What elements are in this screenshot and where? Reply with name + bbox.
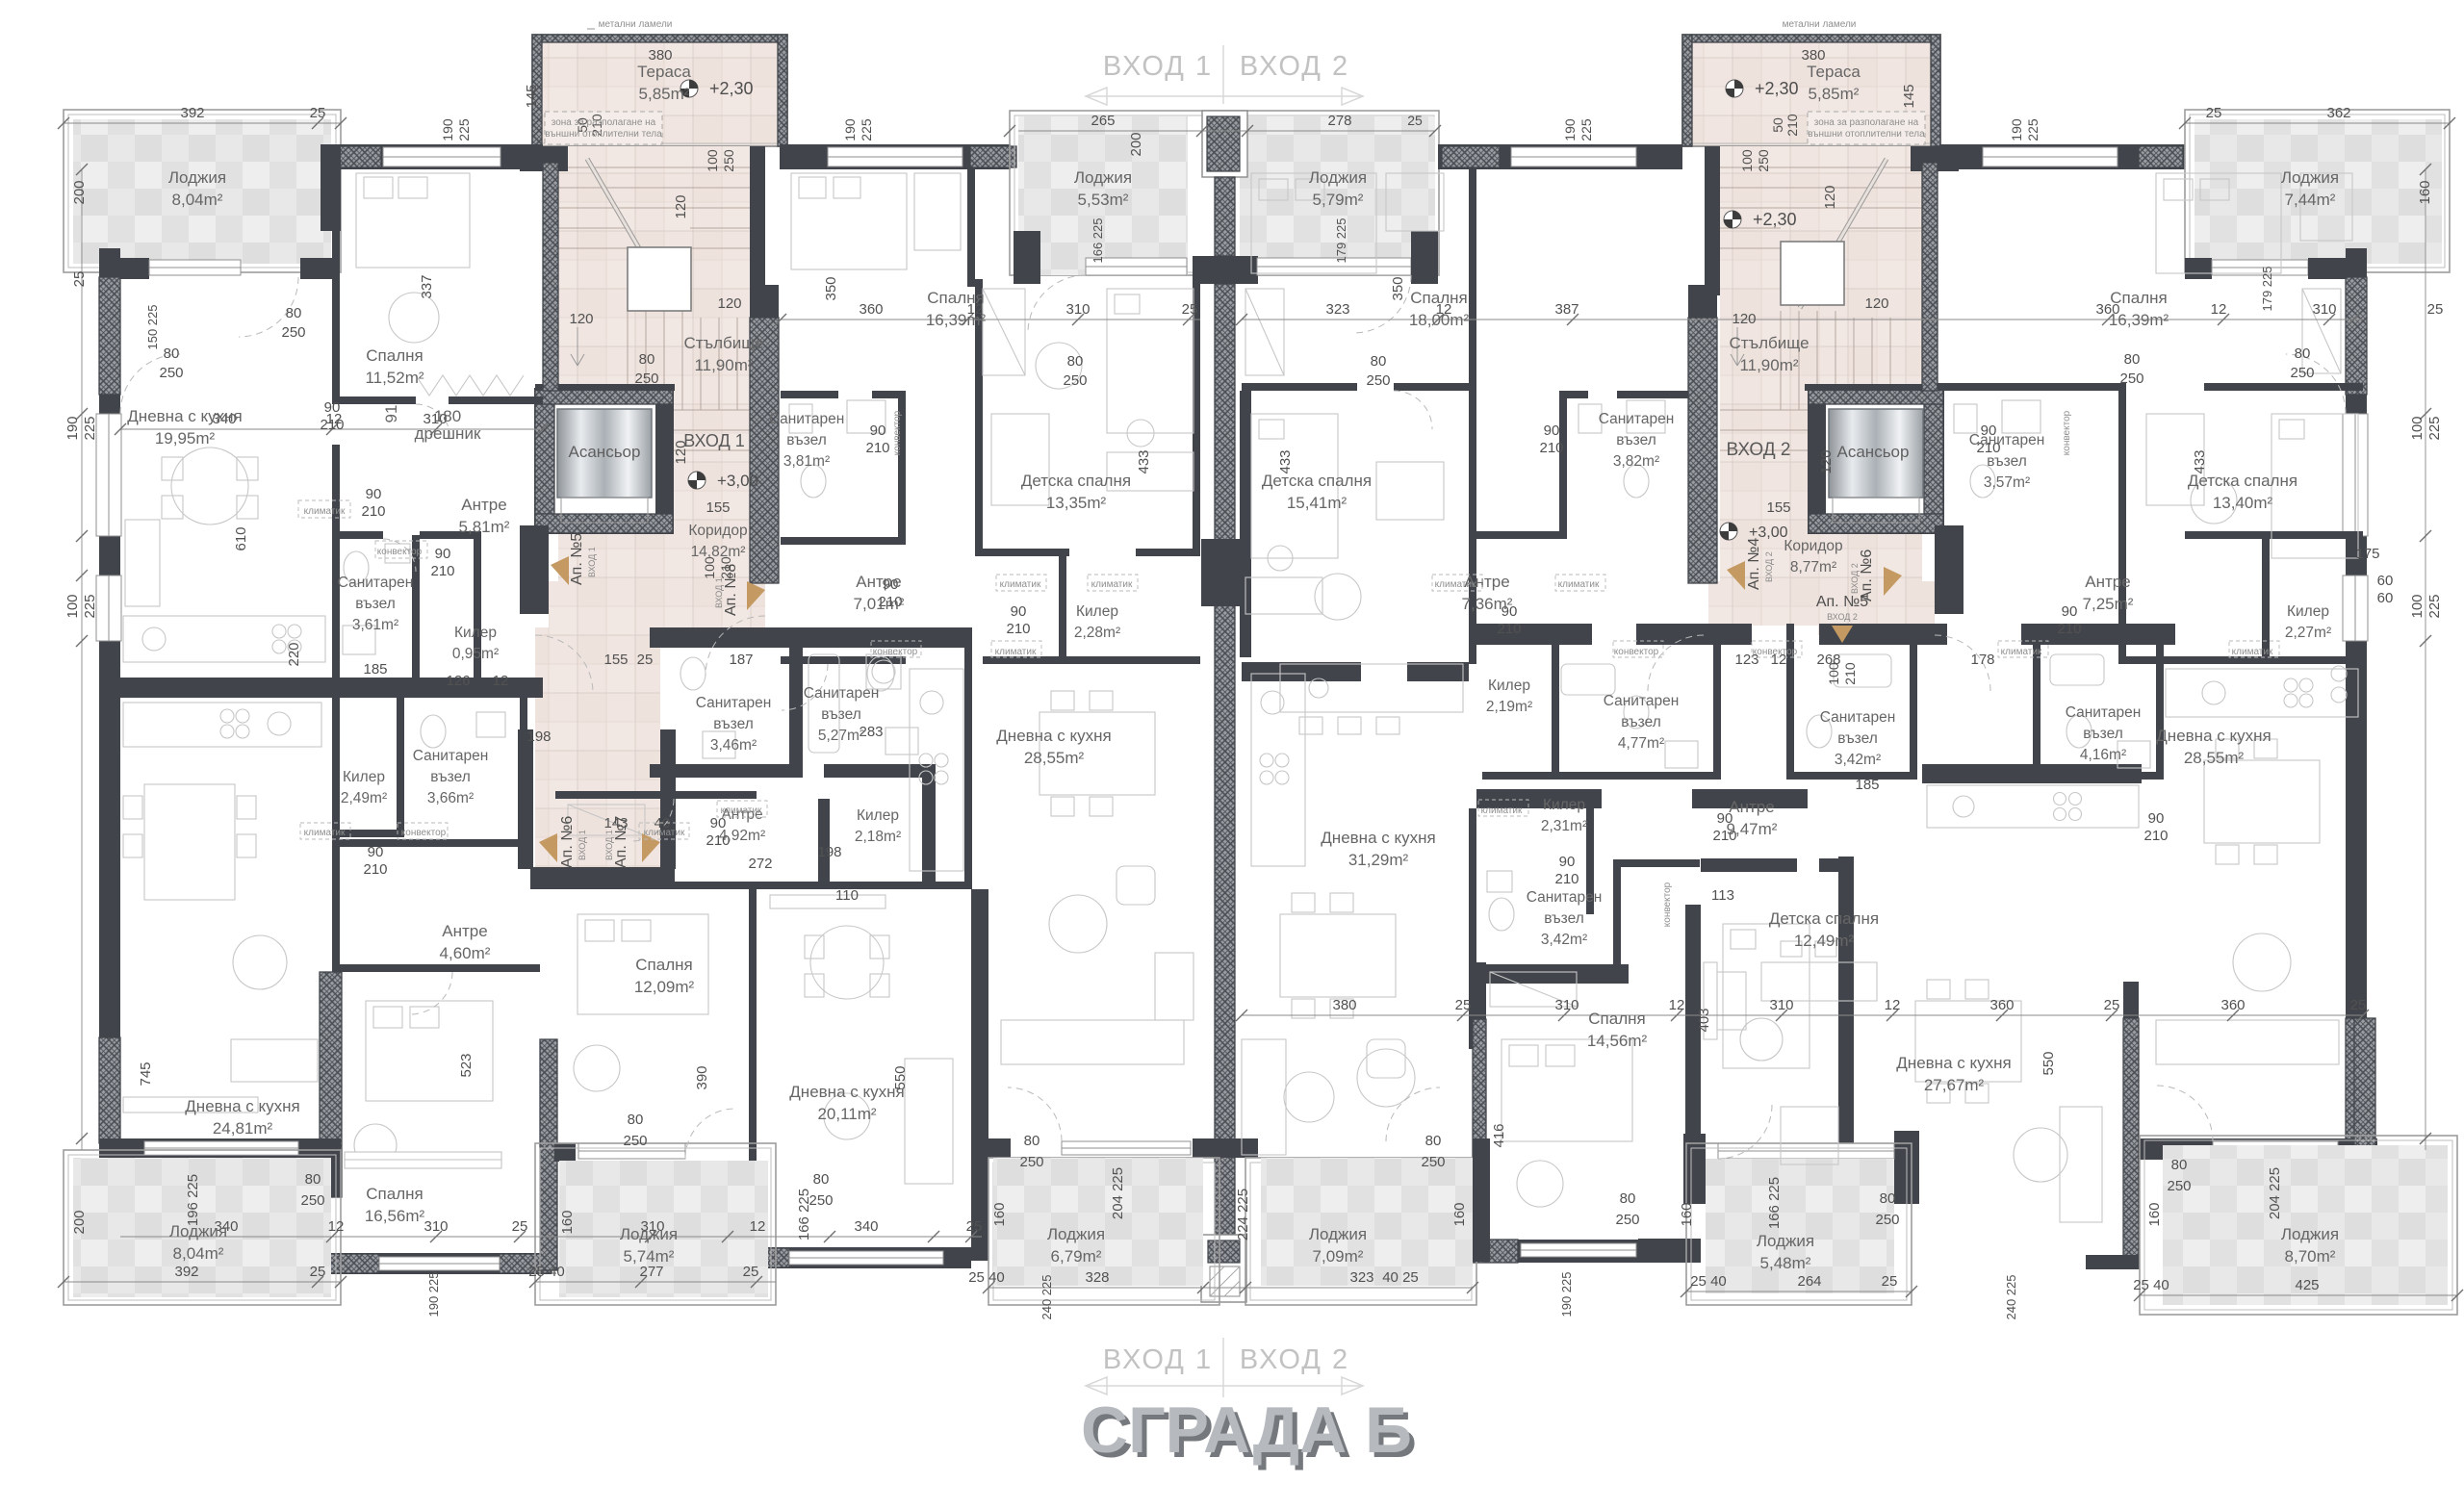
svg-text:Детска спалня: Детска спалня [1769, 909, 1879, 928]
svg-text:145: 145 [1901, 84, 1917, 108]
svg-text:155: 155 [603, 652, 628, 668]
svg-text:конвектор: конвектор [1614, 647, 1659, 657]
svg-text:+2,30: +2,30 [1753, 210, 1797, 229]
svg-text:416: 416 [1491, 1123, 1507, 1147]
svg-text:225: 225 [2025, 118, 2040, 141]
svg-text:5,74m²: 5,74m² [624, 1247, 675, 1266]
svg-text:25 40: 25 40 [968, 1269, 1005, 1286]
svg-text:климатик: климатик [721, 806, 762, 816]
svg-text:Килер: Килер [1543, 797, 1585, 813]
svg-text:12,49m²: 12,49m² [1794, 932, 1855, 950]
svg-text:80: 80 [1024, 1133, 1040, 1149]
svg-text:конвектор: конвектор [401, 828, 447, 838]
svg-text:25: 25 [637, 652, 654, 668]
svg-text:90: 90 [2062, 603, 2078, 620]
svg-text:Лоджия: Лоджия [1074, 168, 1132, 187]
svg-text:190: 190 [842, 118, 858, 141]
svg-text:80: 80 [1425, 1133, 1442, 1149]
svg-text:Санитарен: Санитарен [1604, 693, 1680, 709]
svg-text:Детска спалня: Детска спалня [2188, 472, 2297, 490]
svg-text:392: 392 [180, 105, 204, 121]
svg-text:179 225: 179 225 [2260, 267, 2274, 312]
svg-text:възел: възел [1987, 453, 2027, 470]
svg-text:250: 250 [1366, 372, 1390, 389]
svg-text:50: 50 [1770, 117, 1785, 133]
svg-text:392: 392 [174, 1264, 198, 1280]
svg-text:Стълбище: Стълбище [1729, 334, 1809, 352]
svg-text:Дневна с кухня: Дневна с кухня [185, 1097, 299, 1115]
svg-text:250: 250 [2167, 1178, 2191, 1194]
svg-text:2,31m²: 2,31m² [1541, 818, 1587, 834]
svg-text:80: 80 [305, 1171, 321, 1188]
svg-text:250: 250 [721, 149, 736, 172]
svg-text:Санитарен: Санитарен [1969, 432, 2045, 448]
svg-text:360: 360 [859, 301, 883, 318]
svg-text:12: 12 [328, 1218, 345, 1235]
svg-text:ВХОД 2: ВХОД 2 [1827, 612, 1858, 622]
svg-text:25: 25 [966, 1218, 983, 1235]
svg-text:120: 120 [717, 295, 741, 312]
svg-text:240 225: 240 225 [2004, 1275, 2018, 1320]
svg-text:210: 210 [1006, 621, 1030, 637]
svg-text:200: 200 [71, 1210, 88, 1234]
svg-text:15,41m²: 15,41m² [1287, 494, 1347, 512]
svg-text:27,67m²: 27,67m² [1924, 1076, 1985, 1094]
svg-text:433: 433 [2192, 449, 2208, 473]
svg-text:2,18m²: 2,18m² [855, 829, 901, 845]
svg-text:250: 250 [1421, 1154, 1445, 1170]
svg-text:2,49m²: 2,49m² [341, 790, 387, 806]
svg-text:120: 120 [1822, 185, 1838, 209]
svg-text:конвектор: конвектор [1753, 647, 1798, 657]
svg-text:190 225: 190 225 [1559, 1272, 1574, 1317]
svg-text:Килер: Килер [1076, 603, 1118, 620]
svg-text:Дневна с кухня: Дневна с кухня [996, 727, 1111, 745]
svg-text:523: 523 [458, 1053, 475, 1077]
svg-text:90: 90 [435, 546, 451, 562]
svg-text:Спалня: Спалня [366, 346, 423, 365]
svg-text:климатик: климатик [1435, 579, 1476, 590]
svg-text:25: 25 [2104, 997, 2120, 1013]
svg-text:конвектор: конвектор [2062, 410, 2072, 455]
svg-text:180: 180 [434, 407, 461, 425]
svg-text:380: 380 [1332, 997, 1356, 1013]
svg-text:0,95m²: 0,95m² [452, 646, 499, 662]
svg-text:Лоджия: Лоджия [1757, 1232, 1814, 1250]
svg-text:190 225: 190 225 [426, 1272, 441, 1317]
svg-text:225: 225 [82, 594, 98, 618]
svg-text:2,28m²: 2,28m² [1074, 625, 1120, 641]
svg-text:100: 100 [705, 149, 720, 172]
svg-text:198: 198 [817, 844, 841, 860]
svg-text:190: 190 [64, 416, 81, 440]
svg-text:60: 60 [2377, 590, 2394, 606]
svg-text:Санитарен: Санитарен [1527, 889, 1603, 906]
svg-text:80: 80 [286, 305, 302, 321]
svg-text:25: 25 [1882, 1273, 1898, 1290]
svg-text:380: 380 [648, 47, 672, 64]
svg-text:80: 80 [1620, 1190, 1636, 1207]
svg-text:11,52m²: 11,52m² [365, 369, 423, 387]
svg-text:337: 337 [419, 274, 435, 298]
svg-text:160: 160 [559, 1210, 576, 1234]
svg-text:250: 250 [808, 1192, 833, 1209]
svg-text:28,55m²: 28,55m² [1024, 749, 1085, 767]
svg-text:80: 80 [813, 1171, 830, 1188]
svg-text:80: 80 [639, 351, 655, 368]
svg-text:3,61m²: 3,61m² [352, 617, 398, 633]
svg-text:745: 745 [138, 1061, 154, 1086]
svg-text:3,57m²: 3,57m² [1984, 474, 2030, 491]
svg-text:ВХОД 2: ВХОД 2 [1764, 551, 1774, 582]
svg-text:80: 80 [164, 345, 180, 362]
svg-text:250: 250 [623, 1133, 647, 1149]
svg-text:конвектор: конвектор [873, 647, 918, 657]
svg-text:328: 328 [1085, 1269, 1109, 1286]
svg-text:Тераса: Тераса [1807, 63, 1861, 81]
svg-text:433: 433 [1136, 449, 1152, 473]
svg-text:5,81m²: 5,81m² [459, 518, 510, 536]
svg-text:18,00m²: 18,00m² [1409, 311, 1470, 329]
svg-text:196 225: 196 225 [185, 1174, 201, 1226]
svg-text:Санитарен: Санитарен [2066, 704, 2142, 721]
svg-text:ВХОД 2: ВХОД 2 [1240, 1344, 1349, 1375]
svg-text:145: 145 [524, 84, 540, 108]
svg-text:225: 225 [456, 118, 472, 141]
svg-text:климатик: климатик [1481, 806, 1523, 816]
svg-text:160: 160 [1679, 1202, 1695, 1226]
svg-text:Антре: Антре [461, 496, 506, 514]
svg-text:12,09m²: 12,09m² [634, 978, 695, 996]
svg-text:Ап. №5: Ап. №5 [569, 533, 585, 585]
svg-text:210: 210 [363, 861, 387, 878]
svg-text:Асансьор: Асансьор [569, 443, 641, 461]
svg-text:11,90m²: 11,90m² [694, 356, 753, 374]
svg-text:210: 210 [2143, 828, 2168, 844]
svg-text:25: 25 [1455, 997, 1472, 1013]
svg-text:8,77m²: 8,77m² [1790, 559, 1836, 575]
svg-text:250: 250 [1756, 149, 1771, 172]
svg-text:Дневна с кухня: Дневна с кухня [1321, 829, 1435, 847]
svg-text:91: 91 [382, 405, 400, 423]
svg-text:20,11m²: 20,11m² [817, 1105, 876, 1123]
svg-text:Санитарен: Санитарен [338, 575, 414, 591]
svg-text:100: 100 [2409, 416, 2425, 440]
svg-text:5,79m²: 5,79m² [1313, 191, 1364, 209]
svg-text:5,85m²: 5,85m² [639, 85, 690, 103]
svg-text:425: 425 [2295, 1277, 2319, 1293]
svg-text:160: 160 [2417, 180, 2433, 204]
svg-text:+3,00: +3,00 [717, 472, 758, 490]
svg-text:90: 90 [1544, 422, 1560, 439]
svg-text:80: 80 [628, 1112, 644, 1128]
svg-text:Стълбище: Стълбище [683, 334, 763, 352]
svg-text:25: 25 [512, 1218, 528, 1235]
svg-text:дрешник: дрешник [415, 424, 481, 443]
svg-text:възел: възел [1616, 432, 1656, 448]
svg-text:210: 210 [320, 417, 344, 433]
svg-text:6,79m²: 6,79m² [1051, 1247, 1102, 1266]
svg-text:100: 100 [2409, 594, 2425, 618]
svg-text:550: 550 [2040, 1051, 2057, 1075]
svg-text:190: 190 [2009, 118, 2024, 141]
svg-text:4,60m²: 4,60m² [440, 944, 491, 962]
svg-text:4,92m²: 4,92m² [719, 828, 765, 844]
svg-text:387: 387 [1554, 301, 1578, 318]
svg-text:277: 277 [639, 1264, 663, 1280]
svg-text:климатик: климатик [1558, 579, 1600, 590]
svg-text:120: 120 [673, 194, 689, 218]
svg-text:Тераса: Тераса [637, 63, 691, 81]
svg-text:190: 190 [1562, 118, 1578, 141]
svg-text:климатик: климатик [644, 828, 685, 838]
svg-text:90: 90 [2148, 810, 2165, 827]
svg-text:323: 323 [1349, 1269, 1373, 1286]
svg-text:ВХОД 1: ВХОД 1 [587, 547, 597, 577]
svg-text:350: 350 [823, 276, 839, 300]
svg-text:Лоджия: Лоджия [1309, 168, 1367, 187]
svg-text:ВХОД 2: ВХОД 2 [1727, 440, 1791, 460]
svg-text:възел: възел [821, 706, 861, 723]
svg-text:Спалня: Спалня [1588, 1010, 1645, 1028]
svg-text:3,66m²: 3,66m² [427, 790, 474, 806]
svg-text:климатик: климатик [995, 647, 1037, 657]
svg-text:240 225: 240 225 [1039, 1275, 1054, 1320]
svg-text:зона за разполагане на: зона за разполагане на [552, 117, 656, 128]
svg-text:Спалня: Спалня [1410, 289, 1467, 307]
svg-text:възел: възел [355, 596, 396, 612]
svg-text:13,40m²: 13,40m² [2213, 494, 2273, 512]
svg-text:7,44m²: 7,44m² [2285, 191, 2336, 209]
svg-text:250: 250 [159, 365, 183, 381]
svg-text:360: 360 [1989, 997, 2014, 1013]
svg-text:Спалня: Спалня [366, 1185, 423, 1203]
svg-text:14,82m²: 14,82m² [691, 544, 746, 560]
svg-text:225: 225 [82, 416, 98, 440]
svg-text:Ап. №8: Ап. №8 [723, 564, 739, 616]
svg-text:250: 250 [300, 1192, 324, 1209]
svg-text:Лоджия: Лоджия [2281, 168, 2339, 187]
svg-text:11,90m²: 11,90m² [1739, 356, 1798, 374]
svg-text:конвектор: конвектор [892, 410, 903, 455]
svg-text:110: 110 [835, 887, 859, 904]
svg-text:ВХОД 1: ВХОД 1 [1103, 51, 1213, 82]
svg-text:Килер: Килер [2287, 603, 2329, 620]
svg-text:8,04m²: 8,04m² [173, 1244, 224, 1263]
svg-text:ВХОД 1: ВХОД 1 [577, 830, 587, 860]
svg-text:7,25m²: 7,25m² [2083, 595, 2134, 613]
svg-text:конвектор: конвектор [1662, 882, 1673, 927]
svg-text:Спалня: Спалня [2110, 289, 2167, 307]
svg-text:210: 210 [2057, 621, 2081, 637]
svg-text:ВХОД 2: ВХОД 2 [1240, 51, 1349, 82]
svg-text:16,39m²: 16,39m² [926, 311, 987, 329]
svg-text:362: 362 [2326, 105, 2350, 121]
svg-text:+2,30: +2,30 [1755, 79, 1799, 98]
svg-text:225: 225 [1578, 118, 1594, 141]
svg-text:Спалня: Спалня [635, 956, 692, 974]
svg-text:25: 25 [2427, 301, 2444, 318]
svg-text:80: 80 [2171, 1157, 2188, 1173]
svg-text:160: 160 [991, 1202, 1008, 1226]
svg-text:310: 310 [1769, 997, 1793, 1013]
svg-text:90: 90 [368, 844, 384, 860]
svg-text:възел: възел [430, 769, 471, 785]
svg-text:210: 210 [1539, 440, 1563, 456]
svg-text:264: 264 [1797, 1273, 1821, 1290]
svg-text:Ап. №6: Ап. №6 [559, 816, 576, 868]
svg-text:120: 120 [1818, 449, 1835, 473]
svg-text:възел: възел [2083, 726, 2123, 742]
svg-text:278: 278 [1327, 113, 1351, 129]
svg-text:185: 185 [1855, 777, 1879, 793]
svg-text:25 40: 25 40 [2133, 1277, 2169, 1293]
svg-text:ВХОД 2: ВХОД 2 [1850, 563, 1860, 594]
svg-text:Детска спалня: Детска спалня [1262, 472, 1372, 490]
svg-text:външни отоплителни тела: външни отоплителни тела [545, 129, 662, 140]
svg-text:25: 25 [1182, 301, 1198, 318]
svg-text:Санитарен: Санитарен [769, 411, 845, 427]
svg-text:265: 265 [1091, 113, 1115, 129]
svg-text:250: 250 [2119, 371, 2143, 387]
svg-text:3,82m²: 3,82m² [1613, 453, 1659, 470]
svg-text:7,36m²: 7,36m² [1462, 595, 1513, 613]
svg-text:външни отоплителни тела: външни отоплителни тела [1808, 129, 1925, 140]
svg-text:климатик: климатик [304, 828, 346, 838]
svg-text:Лоджия: Лоджия [1309, 1225, 1367, 1243]
svg-text:12: 12 [2211, 301, 2227, 318]
svg-text:метални ламели: метални ламели [1783, 19, 1857, 30]
svg-text:Детска спалня: Детска спалня [1021, 472, 1131, 490]
svg-text:5,53m²: 5,53m² [1078, 191, 1129, 209]
svg-text:175: 175 [2355, 546, 2379, 562]
svg-text:Лоджия: Лоджия [620, 1225, 678, 1243]
svg-text:90: 90 [870, 422, 886, 439]
svg-text:224 225: 224 225 [1235, 1189, 1251, 1240]
svg-text:80: 80 [1371, 353, 1387, 370]
svg-text:210: 210 [1842, 662, 1858, 685]
svg-text:25: 25 [1407, 113, 1423, 128]
svg-text:Санитарен: Санитарен [1599, 411, 1675, 427]
svg-text:80: 80 [1880, 1190, 1896, 1207]
svg-text:възел: възел [786, 432, 827, 448]
svg-text:Дневна с кухня: Дневна с кухня [2156, 727, 2271, 745]
svg-text:250: 250 [1019, 1154, 1043, 1170]
svg-text:150 225: 150 225 [145, 305, 160, 350]
svg-text:зона за разполагане на: зона за разполагане на [1814, 117, 1919, 128]
svg-text:610: 610 [233, 526, 249, 550]
svg-text:272: 272 [748, 856, 772, 872]
svg-text:4,16m²: 4,16m² [2080, 747, 2126, 763]
svg-text:+2,30: +2,30 [709, 79, 754, 98]
svg-text:198: 198 [526, 729, 551, 745]
svg-text:166 225: 166 225 [1766, 1177, 1783, 1229]
svg-text:климатик: климатик [1000, 579, 1041, 590]
svg-text:ВХОД 1: ВХОД 1 [683, 431, 744, 450]
svg-text:Дневна с кухня: Дневна с кухня [789, 1083, 904, 1101]
svg-text:155: 155 [706, 499, 730, 516]
svg-text:225: 225 [2426, 416, 2443, 440]
svg-text:климатик: климатик [2001, 647, 2042, 657]
svg-text:210: 210 [865, 440, 889, 456]
svg-text:Ап. №7: Ап. №7 [613, 816, 629, 868]
svg-text:310: 310 [1554, 997, 1578, 1013]
svg-text:350: 350 [1390, 276, 1406, 300]
svg-text:25: 25 [2206, 105, 2222, 121]
svg-text:4,77m²: 4,77m² [1618, 735, 1664, 752]
svg-text:200: 200 [71, 180, 88, 204]
svg-text:380: 380 [1801, 47, 1825, 64]
svg-text:7,01m²: 7,01m² [854, 595, 905, 613]
svg-text:3,46m²: 3,46m² [710, 737, 757, 754]
svg-text:12: 12 [1885, 997, 1901, 1013]
svg-text:25 40: 25 40 [1690, 1273, 1727, 1290]
svg-text:433: 433 [1277, 449, 1294, 473]
svg-text:Лоджия: Лоджия [168, 168, 226, 187]
svg-text:268: 268 [1816, 652, 1840, 668]
svg-text:5,85m²: 5,85m² [1809, 85, 1860, 103]
svg-text:179 225: 179 225 [1334, 218, 1348, 264]
svg-text:31,29m²: 31,29m² [1348, 851, 1409, 869]
svg-text:8,70m²: 8,70m² [2285, 1247, 2336, 1266]
svg-text:Лоджия: Лоджия [169, 1222, 227, 1240]
svg-text:Лоджия: Лоджия [2281, 1225, 2339, 1243]
svg-text:25: 25 [310, 1264, 326, 1280]
svg-text:210: 210 [1784, 114, 1800, 137]
svg-text:Килер: Килер [857, 807, 899, 824]
svg-text:80: 80 [2124, 351, 2141, 368]
svg-text:250: 250 [634, 371, 658, 387]
svg-text:5,48m²: 5,48m² [1760, 1254, 1811, 1272]
svg-text:Килер: Килер [454, 625, 497, 641]
svg-text:7,09m²: 7,09m² [1313, 1247, 1364, 1266]
svg-text:160: 160 [1451, 1202, 1468, 1226]
svg-text:25: 25 [71, 271, 88, 288]
svg-text:възел: възел [1837, 730, 1878, 747]
svg-text:16,56m²: 16,56m² [365, 1207, 425, 1225]
svg-text:90: 90 [1011, 603, 1027, 620]
svg-text:ВХОД 1: ВХОД 1 [1103, 1344, 1213, 1375]
svg-text:204 225: 204 225 [1110, 1167, 1126, 1219]
svg-text:210: 210 [361, 503, 385, 520]
svg-text:ВХОД 1: ВХОД 1 [714, 577, 724, 608]
svg-text:120: 120 [1864, 295, 1888, 312]
svg-text:3,42m²: 3,42m² [1541, 932, 1587, 948]
svg-text:200: 200 [1128, 132, 1144, 156]
svg-text:178: 178 [1970, 652, 1994, 668]
svg-text:210: 210 [1497, 621, 1521, 637]
svg-text:Ап. №4: Ап. №4 [1746, 538, 1762, 590]
svg-text:Ап. №5: Ап. №5 [1816, 594, 1868, 610]
svg-text:3,42m²: 3,42m² [1835, 752, 1881, 768]
svg-text:360: 360 [2220, 997, 2245, 1013]
svg-text:13,35m²: 13,35m² [1046, 494, 1107, 512]
svg-text:220: 220 [286, 642, 302, 666]
svg-text:метални ламели: метални ламели [599, 19, 673, 30]
svg-text:120: 120 [1732, 311, 1756, 327]
svg-text:166 225: 166 225 [796, 1189, 812, 1240]
svg-text:25 40: 25 40 [528, 1264, 565, 1280]
svg-text:210: 210 [430, 563, 454, 579]
svg-text:конвектор: конвектор [377, 547, 423, 557]
svg-text:25: 25 [2350, 997, 2367, 1013]
svg-text:166 225: 166 225 [1091, 218, 1105, 264]
svg-text:225: 225 [859, 118, 874, 141]
svg-text:323: 323 [1325, 301, 1349, 318]
svg-text:24,81m²: 24,81m² [213, 1119, 273, 1138]
svg-text:14,56m²: 14,56m² [1587, 1032, 1648, 1050]
svg-text:Коридор: Коридор [688, 523, 747, 539]
